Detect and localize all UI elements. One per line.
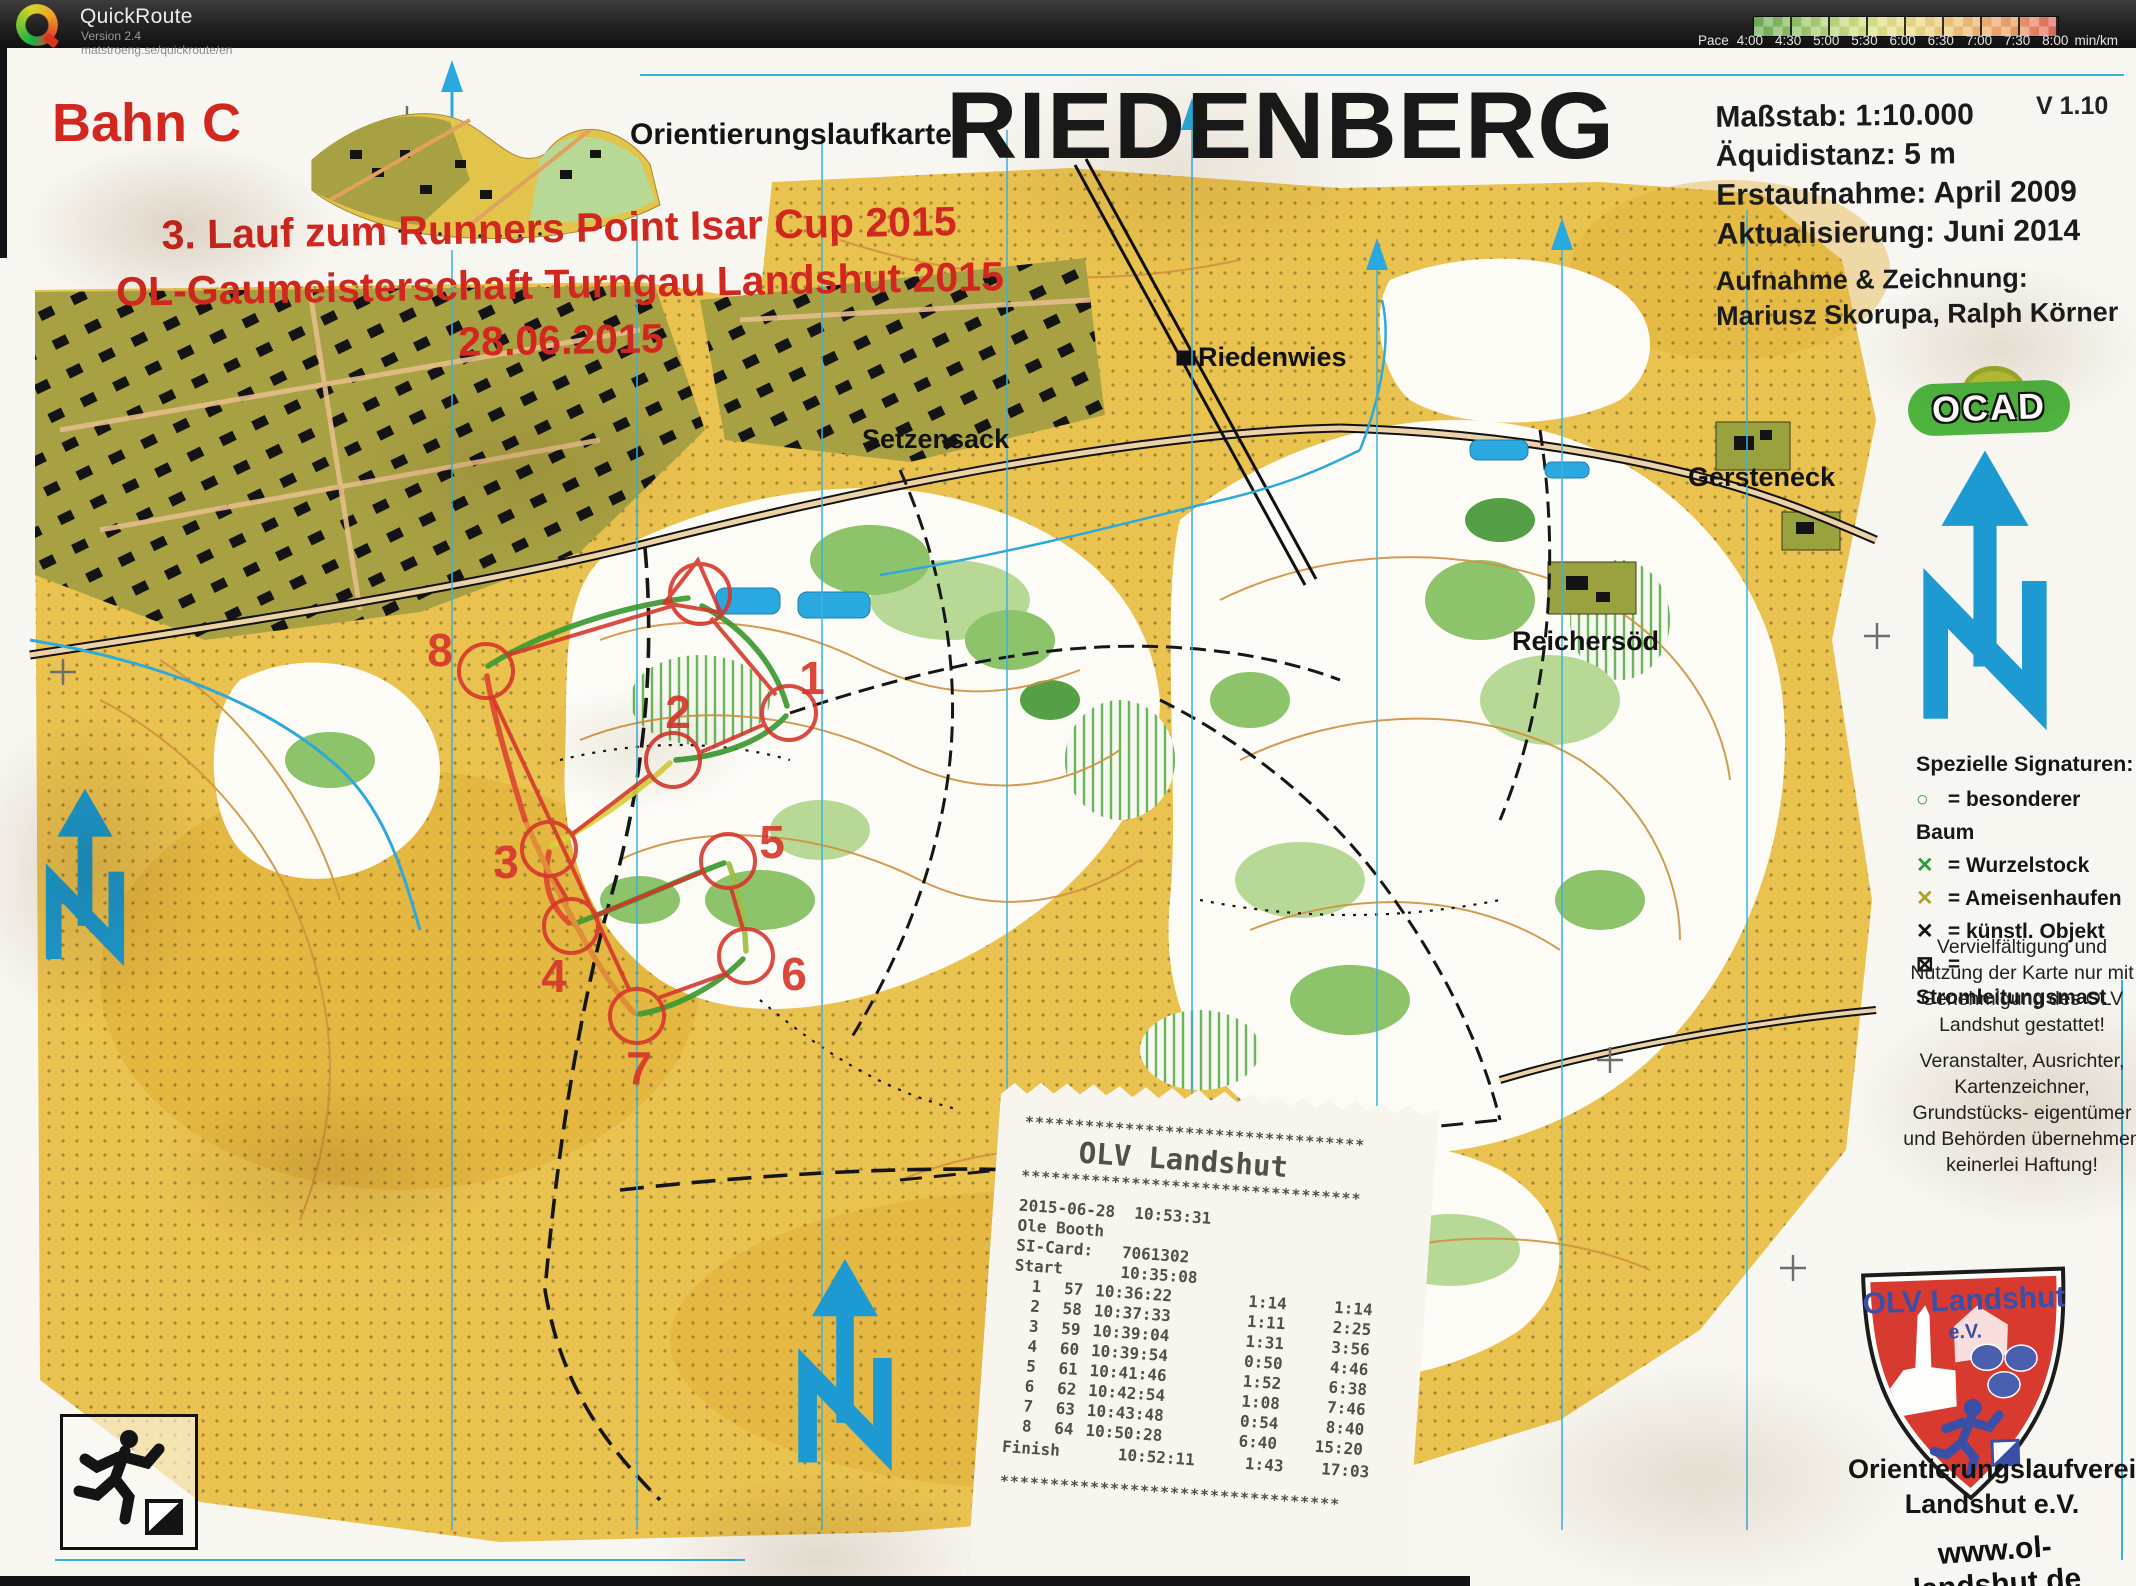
map-kind-label: Orientierungslaufkarte (630, 118, 952, 152)
place-setzensack: Setzensack (862, 424, 1010, 454)
map-meta-block: Maßstab: 1:10.000 Äquidistanz: 5 m Ersta… (1715, 94, 2080, 254)
pace-label: Pace (1698, 33, 1729, 48)
quickroute-window: QuickRoute Version 2.4 matstroeng.se/qui… (0, 0, 2136, 1586)
legend-symbol-icon: ○ (1916, 783, 1942, 816)
quickroute-logo-tail (43, 33, 60, 49)
club-name-line1: Orientierungslaufverein (1848, 1452, 2136, 1487)
pace-ticks: 4:004:305:005:306:006:307:007:308:00 (1737, 33, 2069, 48)
split-code: 64 (1031, 1417, 1074, 1440)
place-riedenwies: Riedenwies (1198, 342, 1347, 372)
legend-item: ✕ = Ameisenhaufen (1916, 882, 2136, 915)
legend-item-text: = Ameisenhaufen (1948, 887, 2122, 910)
legend-item-text: = Wurzelstock (1948, 854, 2089, 877)
control-number-3: 3 (493, 836, 519, 888)
receipt-splits: 1 57 10:36:22 1:14 1:14 2 58 10:37:33 1:… (1003, 1275, 1403, 1462)
app-name: QuickRoute (80, 5, 193, 29)
place-reichersoed: Reichersöd (1512, 626, 1659, 656)
legend-item: ✕ = Wurzelstock (1916, 849, 2136, 882)
map-scale: Maßstab: 1:10.000 (1715, 94, 2079, 137)
map-title: RIEDENBERG (946, 72, 1615, 181)
pace-tick: 4:30 (1775, 33, 1801, 48)
control-number-4: 4 (541, 950, 567, 1002)
legend-symbol-icon: ✕ (1916, 849, 1942, 882)
ocad-logo-text: OCAD (1931, 385, 2046, 431)
copyright-notice: Vervielfältigung und Nutzung der Karte n… (1904, 934, 2136, 1038)
shield-ev: e.V. (1948, 1320, 1982, 1343)
control-number-1: 1 (799, 652, 825, 704)
event-title-lines: 3. Lauf zum Runners Point Isar Cup 2015O… (59, 191, 1062, 376)
map-first-survey: Erstaufnahme: April 2009 (1716, 172, 2080, 215)
scan-edge-left (0, 48, 7, 258)
title-bar: QuickRoute Version 2.4 matstroeng.se/qui… (0, 0, 2136, 48)
pace-tick: 8:00 (2042, 33, 2068, 48)
split-times-receipt: ********************************** OLV L… (963, 1076, 1439, 1586)
split-number: 6 (1006, 1375, 1035, 1397)
split-leg: 6:40 (1214, 1430, 1277, 1454)
split-total: 15:20 (1292, 1435, 1363, 1460)
legend-item: ○ = besonderer Baum (1916, 783, 2136, 849)
legend-symbol-icon: ✕ (1916, 882, 1942, 915)
club-name-line2: Landshut e.V. (1848, 1487, 2136, 1522)
ocad-logo-pill: OCAD (1907, 379, 2071, 437)
pace-tick: 5:00 (1813, 33, 1839, 48)
club-name: Orientierungslaufverein Landshut e.V. (1848, 1452, 2136, 1522)
pace-tick: 4:00 (1737, 33, 1763, 48)
finish-leg: 1:43 (1221, 1452, 1284, 1476)
pace-tick: 6:30 (1928, 33, 1954, 48)
credit-heading: Aufnahme & Zeichnung: (1716, 260, 2118, 299)
map-equidistance: Äquidistanz: 5 m (1716, 133, 2080, 176)
ocad-logo: OCAD (1908, 378, 2078, 440)
split-number: 4 (1009, 1335, 1038, 1357)
split-number: 2 (1011, 1295, 1040, 1317)
split-number: 8 (1003, 1415, 1032, 1437)
pace-tick: 7:00 (1966, 33, 1992, 48)
course-label: Bahn C (52, 92, 241, 154)
shield-title: OLV Landshut (1862, 1281, 2066, 1321)
control-number-5: 5 (759, 816, 785, 868)
app-url-link[interactable]: matstroeng.se/quickroute/en (81, 43, 232, 57)
pace-tick: 7:30 (2004, 33, 2030, 48)
orienteering-runner-logo (60, 1414, 198, 1550)
liability-notice: Veranstalter, Ausrichter, Kartenzeichner… (1898, 1048, 2136, 1178)
place-gersteneck: Gersteneck (1688, 462, 1836, 492)
split-number: 1 (1013, 1275, 1042, 1297)
legend-heading: Spezielle Signaturen: (1916, 748, 2136, 781)
pace-tick: 6:00 (1889, 33, 1915, 48)
control-number-8: 8 (427, 624, 453, 676)
split-number: 7 (1004, 1395, 1033, 1417)
pace-scale-labels: Pace 4:004:305:005:306:006:307:007:308:0… (1698, 33, 2118, 48)
control-number-6: 6 (781, 948, 807, 1000)
pace-tick: 5:30 (1851, 33, 1877, 48)
app-version: Version 2.4 (81, 29, 141, 43)
map-update: Aktualisierung: Juni 2014 (1716, 211, 2080, 254)
credit-names: Mariusz Skorupa, Ralph Körner (1716, 295, 2118, 334)
runner-flag-icon (147, 1501, 181, 1533)
control-number-2: 2 (665, 686, 691, 738)
pace-unit: min/km (2075, 33, 2119, 48)
split-number: 5 (1007, 1355, 1036, 1377)
scan-edge-bottom (0, 1576, 1470, 1586)
control-number-7: 7 (626, 1042, 652, 1094)
map-credit-block: Aufnahme & Zeichnung: Mariusz Skorupa, R… (1716, 260, 2119, 334)
split-number: 3 (1010, 1315, 1039, 1337)
